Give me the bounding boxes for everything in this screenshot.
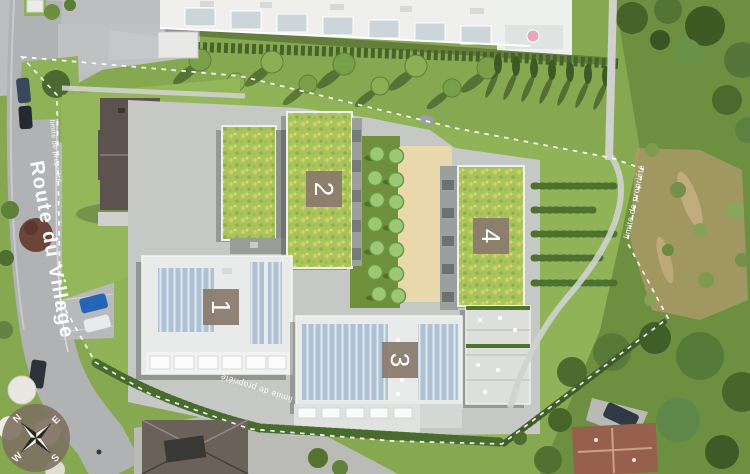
cyclist — [97, 450, 102, 455]
building-number-1: 1 — [206, 300, 236, 314]
house-bottom-left — [142, 420, 248, 474]
site-plan: 1 2 3 4 — [0, 0, 750, 474]
building-label-2: 2 — [306, 171, 342, 207]
solar-array — [250, 262, 264, 344]
building-label-3: 3 — [382, 342, 418, 378]
terrace-block — [460, 306, 530, 408]
building-number-3: 3 — [385, 353, 415, 367]
solar-array — [268, 262, 282, 344]
car — [18, 106, 33, 130]
building-label-1: 1 — [203, 289, 239, 325]
building-label-4: 4 — [473, 218, 509, 254]
parasol — [527, 30, 539, 42]
building-number-4: 4 — [476, 229, 506, 243]
solar-array — [302, 324, 388, 400]
building-number-2: 2 — [309, 182, 339, 196]
building-3 — [290, 316, 462, 434]
solar-array — [418, 324, 458, 400]
car — [16, 77, 32, 103]
